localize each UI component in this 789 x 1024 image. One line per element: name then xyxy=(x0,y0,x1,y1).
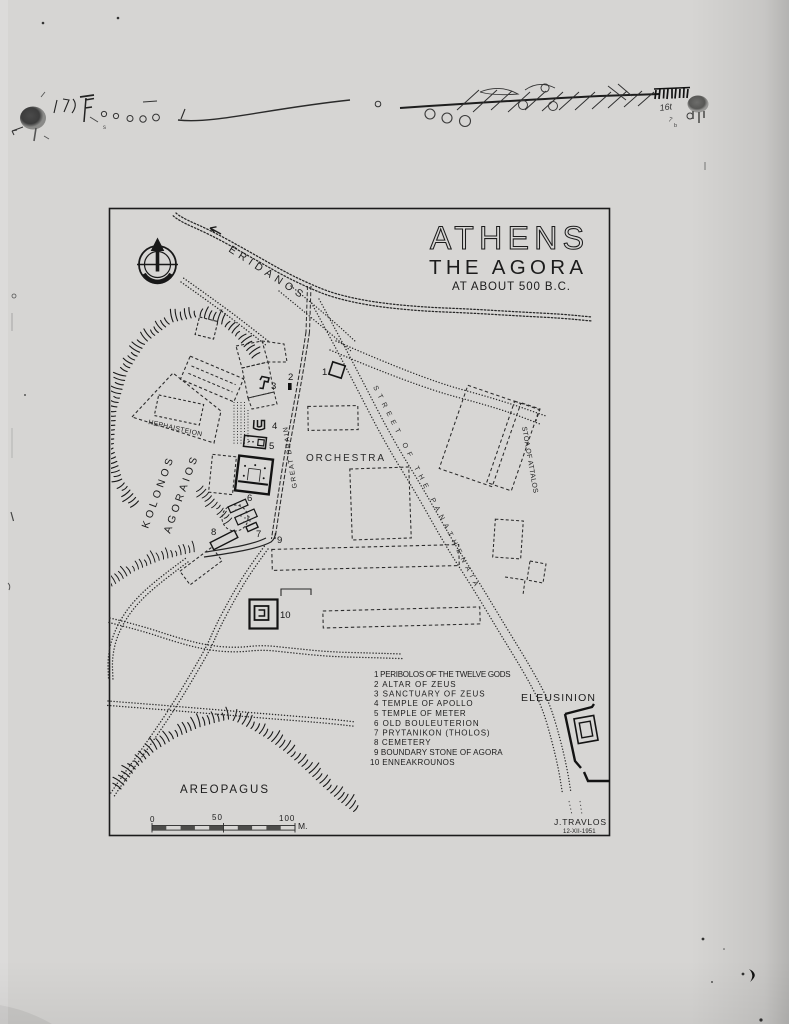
svg-text:9: 9 xyxy=(277,535,282,546)
svg-text:4 TEMPLE OF APOLLO: 4 TEMPLE OF APOLLO xyxy=(374,699,473,708)
svg-text:12-XII-1951: 12-XII-1951 xyxy=(563,829,596,835)
svg-text:7: 7 xyxy=(256,529,261,540)
svg-text:5: 5 xyxy=(269,441,274,452)
svg-text:3 SANCTUARY OF ZEUS: 3 SANCTUARY OF ZEUS xyxy=(374,690,485,699)
svg-text:M.: M. xyxy=(298,821,307,831)
svg-text:ELEUSINION: ELEUSINION xyxy=(521,692,597,704)
svg-text:16t: 16t xyxy=(659,101,673,113)
svg-text:3: 3 xyxy=(271,381,276,392)
svg-text:0: 0 xyxy=(150,815,155,824)
svg-text:1 PERIBOLOS OF THE TWELVE GODS: 1 PERIBOLOS OF THE TWELVE GODS xyxy=(374,670,511,679)
svg-text:8: 8 xyxy=(211,527,216,538)
svg-text:10 ENNEAKROUNOS: 10 ENNEAKROUNOS xyxy=(370,758,455,767)
svg-text:4: 4 xyxy=(272,421,277,432)
svg-text:J.TRAVLOS: J.TRAVLOS xyxy=(554,817,607,827)
svg-text:6: 6 xyxy=(247,493,252,504)
svg-text:5 TEMPLE OF METER: 5 TEMPLE OF METER xyxy=(374,709,466,718)
svg-text:9 BOUNDARY STONE OF AGORA: 9 BOUNDARY STONE OF AGORA xyxy=(374,748,503,757)
svg-text:AREOPAGUS: AREOPAGUS xyxy=(180,784,270,796)
svg-text:ORCHESTRA: ORCHESTRA xyxy=(306,453,386,464)
svg-text:6 OLD BOULEUTERION: 6 OLD BOULEUTERION xyxy=(374,719,479,728)
svg-text:2 ALTAR OF ZEUS: 2 ALTAR OF ZEUS xyxy=(374,680,456,689)
svg-text:b: b xyxy=(674,123,677,129)
svg-text:10: 10 xyxy=(280,610,291,621)
svg-text:100: 100 xyxy=(279,814,295,823)
svg-text:2: 2 xyxy=(288,372,293,383)
svg-text:1: 1 xyxy=(322,367,327,378)
svg-text:7 PRYTANIKON (THOLOS): 7 PRYTANIKON (THOLOS) xyxy=(374,729,490,738)
svg-text:8 CEMETERY: 8 CEMETERY xyxy=(374,738,431,747)
svg-text:s: s xyxy=(103,125,106,131)
svg-text:AT ABOUT 500 B.C.: AT ABOUT 500 B.C. xyxy=(452,281,570,293)
svg-text:50: 50 xyxy=(212,813,223,822)
